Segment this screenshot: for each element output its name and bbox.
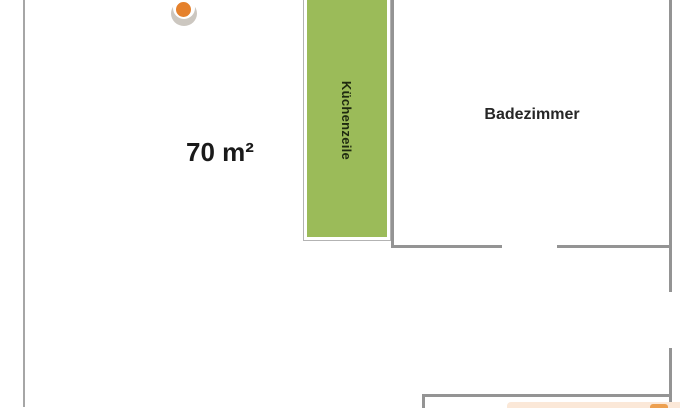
wall-right-lower (669, 348, 672, 408)
wall-bathroom-bottom-left (391, 245, 502, 248)
wall-bathroom-bottom-right (557, 245, 672, 248)
floor-plan: 70 m² Küchenzeile Badezimmer (0, 0, 680, 408)
lamp-dot-icon (176, 2, 191, 17)
bathroom-label: Badezimmer (394, 0, 670, 230)
wall-bottomright-stub (422, 394, 425, 408)
kitchen-unit-fill (307, 0, 387, 237)
bottom-accent-orange (650, 404, 668, 408)
kitchen-unit-shape (303, 0, 391, 241)
wall-bottomright-top (422, 394, 672, 397)
area-label: 70 m² (186, 137, 254, 168)
wall-left-outer (23, 0, 25, 407)
